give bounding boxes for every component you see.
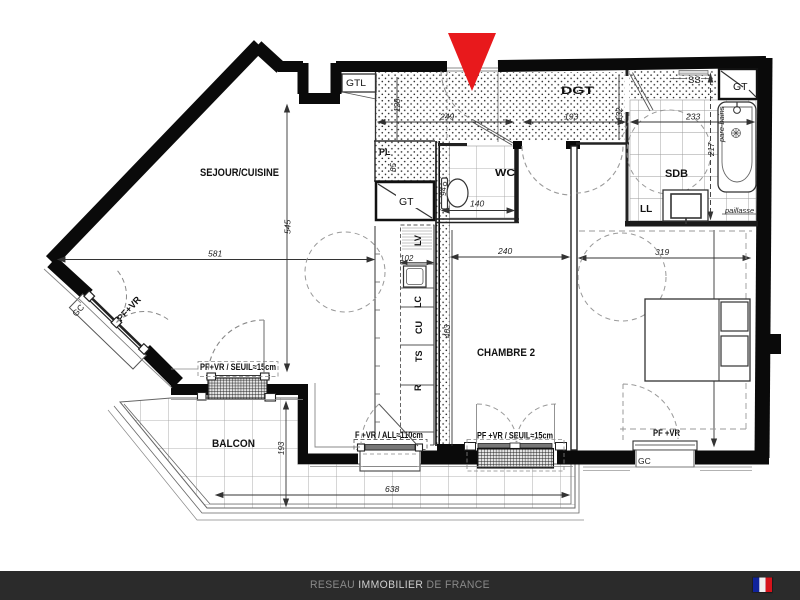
svg-text:128: 128 — [393, 98, 402, 112]
svg-text:581: 581 — [208, 249, 222, 259]
svg-text:319: 319 — [655, 247, 669, 257]
svg-text:LL: LL — [640, 204, 652, 215]
svg-text:LV: LV — [413, 235, 423, 246]
svg-text:193: 193 — [277, 441, 286, 455]
svg-text:GC: GC — [638, 456, 651, 466]
svg-text:DGT: DGT — [561, 85, 594, 97]
svg-text:GT: GT — [733, 81, 748, 93]
svg-text:CU: CU — [414, 321, 424, 334]
svg-text:TS: TS — [414, 350, 424, 362]
svg-text:GTL: GTL — [346, 78, 366, 89]
svg-text:PF +VR: PF +VR — [653, 428, 680, 438]
svg-text:638: 638 — [385, 484, 399, 494]
svg-text:545: 545 — [283, 220, 293, 234]
svg-text:R: R — [413, 384, 423, 391]
svg-text:GT: GT — [399, 196, 414, 208]
svg-text:SS: SS — [688, 75, 701, 86]
svg-text:F +VR / ALL≈110cm: F +VR / ALL≈110cm — [355, 430, 423, 440]
svg-text:65: 65 — [389, 163, 398, 172]
svg-text:LC: LC — [413, 296, 423, 308]
svg-text:94: 94 — [439, 187, 448, 196]
svg-text:193: 193 — [564, 112, 578, 122]
svg-text:132: 132 — [615, 107, 624, 121]
svg-text:RESEAU IMMOBILIER DE FRANCE: RESEAU IMMOBILIER DE FRANCE — [310, 579, 490, 591]
svg-text:403: 403 — [443, 324, 452, 338]
svg-text:233: 233 — [685, 112, 700, 122]
svg-text:PF+VR / SEUIL≈15cm: PF+VR / SEUIL≈15cm — [200, 362, 276, 372]
svg-text:pare-bains: pare-bains — [717, 106, 726, 143]
svg-text:SEJOUR/CUISINE: SEJOUR/CUISINE — [200, 167, 279, 179]
svg-text:240: 240 — [497, 246, 512, 256]
svg-text:217: 217 — [707, 142, 716, 157]
svg-text:SDB: SDB — [665, 168, 688, 180]
svg-text:BALCON: BALCON — [212, 438, 255, 450]
svg-text:249: 249 — [439, 112, 454, 122]
svg-text:PL: PL — [379, 147, 391, 157]
svg-text:140: 140 — [470, 199, 484, 209]
svg-text:WC: WC — [495, 167, 515, 179]
svg-text:CHAMBRE 2: CHAMBRE 2 — [477, 347, 535, 359]
svg-text:PF +VR / SEUIL≈15cm: PF +VR / SEUIL≈15cm — [477, 431, 553, 441]
